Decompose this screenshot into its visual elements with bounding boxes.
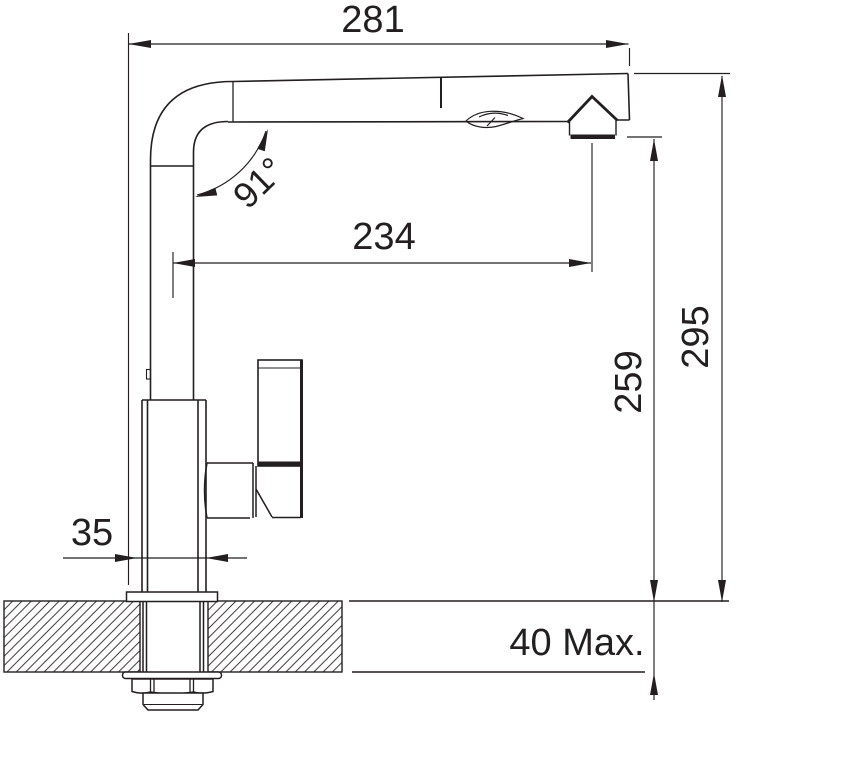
threaded-shank [143, 601, 204, 672]
pullout-grip-detail [466, 111, 523, 127]
countertop-hatch-right [208, 601, 342, 672]
shank-end [143, 693, 203, 710]
dim-label-total-width: 281 [341, 1, 404, 39]
arrow-234-right [569, 259, 591, 267]
arrow-259-bottom [650, 580, 658, 602]
arrow-295-top [718, 75, 726, 97]
faucet-riser [151, 152, 194, 400]
locknut [132, 679, 213, 694]
arrow-281-right [606, 40, 629, 48]
faucet-body [142, 74, 630, 593]
faucet-elbow-inner [194, 122, 229, 153]
drawing-linework [0, 0, 852, 771]
dim-label-total-height: 295 [677, 305, 715, 368]
handle-lever [258, 360, 302, 466]
handle-assembly [205, 360, 303, 518]
dim-label-counter-thickness: 40 Max. [509, 624, 644, 662]
arrow-angle-bottom [195, 188, 217, 197]
dim-label-base-width: 35 [71, 514, 113, 552]
spray-head-body [570, 120, 617, 136]
arrow-295-bottom [718, 580, 726, 602]
dim-label-spout-reach: 234 [352, 218, 415, 256]
faucet-elbow-outer [151, 82, 234, 167]
arrow-40max-bottom [650, 673, 658, 695]
faucet-base [142, 400, 206, 592]
arrow-35-left [115, 554, 137, 562]
handle-connector [205, 463, 257, 518]
spray-head-aerator [571, 135, 616, 140]
spray-head [568, 97, 618, 123]
dim-label-outlet-height: 259 [610, 350, 648, 413]
handle-neck [256, 489, 301, 518]
arrow-35-right [206, 554, 228, 562]
arrow-259-top [650, 139, 658, 161]
washer [123, 672, 222, 679]
countertop-hatch-left [4, 601, 140, 672]
mounting-flange [127, 592, 218, 602]
faucet-spout-right-edge [628, 74, 630, 121]
handle-lever-bold-band [258, 462, 302, 467]
arrow-angle-top [257, 129, 268, 151]
arrow-234-left [173, 259, 195, 267]
faucet-spout-top [233, 74, 628, 82]
faucet-dimension-drawing: 281 234 91° 259 295 35 40 Max. [0, 0, 852, 771]
arrow-281-left [129, 40, 152, 48]
